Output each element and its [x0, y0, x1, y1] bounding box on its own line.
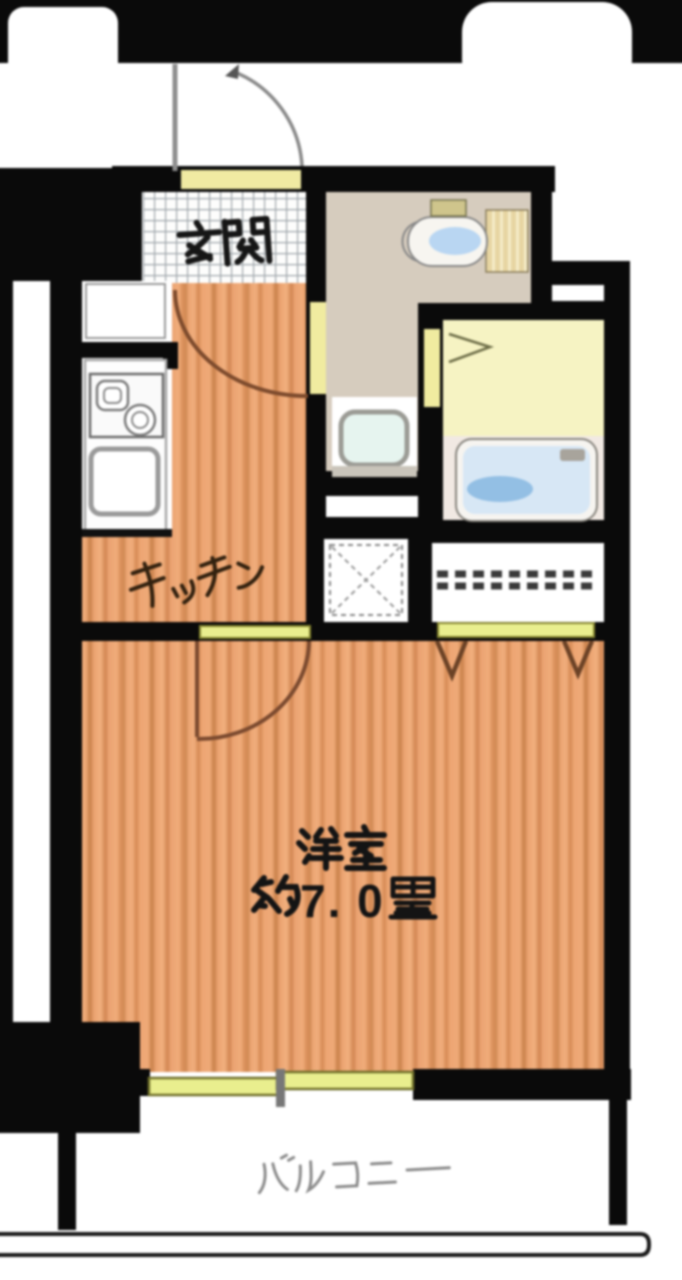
svg-text:7. 0: 7. 0: [300, 875, 385, 927]
